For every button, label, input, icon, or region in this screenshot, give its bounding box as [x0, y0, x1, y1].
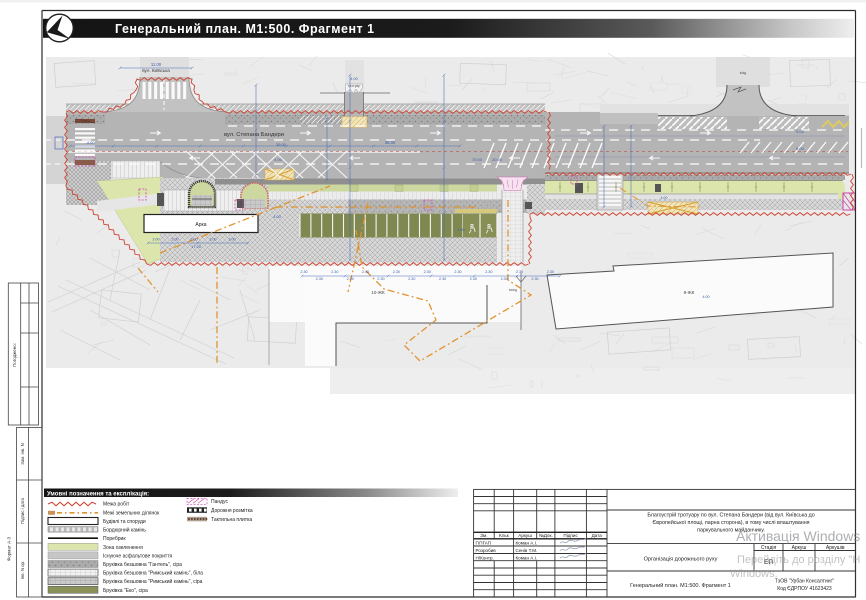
svg-text:4.00: 4.00: [458, 228, 465, 232]
svg-text:вихід: вихід: [509, 288, 517, 292]
svg-text:Кльк: Кльк: [499, 533, 510, 538]
svg-text:Межі земельних ділянок: Межі земельних ділянок: [103, 510, 160, 516]
svg-text:5.00: 5.00: [796, 129, 805, 134]
svg-text:Активація Windows: Активація Windows: [736, 528, 860, 544]
svg-text:36.00: 36.00: [385, 140, 396, 145]
svg-text:Стадія: Стадія: [761, 545, 777, 551]
svg-text:2.30: 2.30: [470, 277, 477, 281]
svg-text:4.00: 4.00: [274, 158, 281, 162]
svg-text:Коман А.І.: Коман А.І.: [516, 540, 538, 545]
svg-text:Генеральний план. М1:500. Фраг: Генеральний план. М1:500. Фрагмент 1: [630, 582, 731, 589]
svg-text:тротуар: тротуар: [348, 84, 361, 88]
svg-text:Н/Контр.: Н/Контр.: [476, 555, 494, 560]
svg-text:Дата: Дата: [592, 533, 603, 538]
svg-text:Сенів Т.М.: Сенів Т.М.: [516, 548, 538, 553]
svg-text:2.30: 2.30: [316, 277, 323, 281]
svg-text:ГІПГАП: ГІПГАП: [476, 540, 492, 545]
svg-text:Бордюрний камінь: Бордюрний камінь: [103, 527, 146, 534]
svg-text:6.00: 6.00: [796, 146, 805, 151]
svg-text:Дорожня розмітка: Дорожня розмітка: [211, 508, 253, 514]
svg-text:2.30: 2.30: [439, 277, 446, 281]
svg-text:Поребрик: Поребрик: [103, 536, 126, 542]
svg-text:2.30: 2.30: [377, 277, 384, 281]
svg-text:36.00: 36.00: [276, 142, 287, 147]
svg-text:11.00: 11.00: [151, 62, 162, 67]
svg-text:2.30: 2.30: [485, 270, 492, 274]
svg-text:-4.00: -4.00: [85, 140, 95, 145]
svg-text:Генеральний план. М1:500. Фраг: Генеральний план. М1:500. Фрагмент 1: [115, 22, 375, 36]
svg-text:2.30: 2.30: [408, 277, 415, 281]
svg-text:вїзд: вїзд: [740, 71, 746, 75]
svg-text:20.00: 20.00: [492, 157, 503, 162]
svg-text:Інв. N ор.: Інв. N ор.: [20, 561, 25, 580]
svg-text:4.00: 4.00: [661, 196, 668, 200]
svg-text:Погоджено:: Погоджено:: [12, 343, 17, 367]
svg-text:17.20: 17.20: [191, 244, 202, 249]
svg-text:Бруківка безшовна "Гантель", с: Бруківка безшовна "Гантель", сіра: [103, 562, 182, 568]
svg-text:Розробив: Розробив: [476, 548, 497, 553]
svg-text:Підпис: Підпис: [563, 533, 578, 538]
svg-text:Аркуш: Аркуш: [792, 545, 807, 551]
svg-text:Windows.: Windows.: [730, 568, 778, 580]
svg-text:Пандус: Пандус: [211, 499, 228, 505]
svg-text:вул. Степана Бандери: вул. Степана Бандери: [224, 132, 284, 138]
svg-text:2.30: 2.30: [531, 277, 538, 281]
svg-text:Європейської площі, парна стор: Європейської площі, парна сторона), в то…: [653, 519, 810, 526]
svg-text:вул. Київська: вул. Київська: [142, 68, 170, 73]
svg-text:Аркуш: Аркуш: [518, 533, 532, 538]
svg-text:Зам. інв. N: Зам. інв. N: [20, 443, 25, 464]
svg-text:3.00: 3.00: [190, 238, 197, 242]
svg-text:3.00: 3.00: [228, 238, 235, 242]
svg-text:Бруківка "Еко", сіра: Бруківка "Еко", сіра: [103, 588, 148, 594]
svg-text:Організація дорожнього руху: Організація дорожнього руху: [644, 557, 718, 563]
svg-text:4.00: 4.00: [350, 77, 357, 81]
svg-text:Підпис і дата: Підпис і дата: [20, 497, 25, 523]
svg-text:Формат А-3: Формат А-3: [7, 536, 12, 561]
svg-text:Бруківка безшовна "Римський ка: Бруківка безшовна "Римський камінь", сір…: [103, 578, 203, 585]
svg-text:Зона озеленення: Зона озеленення: [103, 545, 143, 551]
svg-text:Умовні позначення та експлікац: Умовні позначення та експлікація:: [47, 491, 149, 497]
svg-text:3.00: 3.00: [152, 238, 159, 242]
svg-text:4.00: 4.00: [273, 214, 282, 219]
svg-text:№Док.: №Док.: [539, 533, 553, 538]
svg-text:2.30: 2.30: [393, 270, 400, 274]
svg-text:2.30: 2.30: [331, 270, 338, 274]
svg-text:Тактильна плитка: Тактильна плитка: [211, 517, 252, 523]
svg-text:2.30: 2.30: [501, 277, 508, 281]
svg-text:Аркушів: Аркушів: [826, 545, 845, 551]
svg-text:2.30: 2.30: [547, 270, 554, 274]
svg-text:Арка: Арка: [195, 222, 206, 228]
svg-text:2.30: 2.30: [362, 270, 369, 274]
svg-text:2.30: 2.30: [347, 277, 354, 281]
svg-text:2.30: 2.30: [424, 270, 431, 274]
svg-text:Існуюче асфальтове покриття: Існуюче асфальтове покриття: [103, 553, 172, 559]
svg-text:Коман А.І.: Коман А.І.: [516, 555, 538, 560]
svg-text:Межа робіт: Межа робіт: [103, 502, 130, 508]
svg-text:Бруківка безшовна "Римський ка: Бруківка безшовна "Римський камінь", біл…: [103, 570, 203, 577]
svg-text:ТзОВ "Урбан Консалтинг": ТзОВ "Урбан Консалтинг": [775, 579, 834, 585]
svg-text:9-ЖК: 9-ЖК: [684, 290, 695, 295]
svg-text:10-ЖК: 10-ЖК: [371, 290, 385, 295]
svg-text:2.30: 2.30: [300, 270, 307, 274]
svg-text:3.00: 3.00: [171, 238, 178, 242]
svg-text:Будівлі та споруди: Будівлі та споруди: [103, 519, 146, 525]
svg-text:Благоустрій тротуару по вул. С: Благоустрій тротуару по вул. Степана Бан…: [647, 512, 814, 519]
svg-text:2.30: 2.30: [516, 270, 523, 274]
svg-text:2.30: 2.30: [454, 270, 461, 274]
svg-text:3.00: 3.00: [209, 238, 216, 242]
svg-text:Перейдіть до розділу "Н: Перейдіть до розділу "Н: [737, 554, 860, 566]
svg-text:Зм.: Зм.: [480, 533, 487, 538]
svg-text:Код ЄДРПОУ 41623423: Код ЄДРПОУ 41623423: [777, 586, 832, 592]
svg-text:70.00: 70.00: [472, 157, 483, 162]
svg-text:4.00: 4.00: [703, 295, 710, 299]
